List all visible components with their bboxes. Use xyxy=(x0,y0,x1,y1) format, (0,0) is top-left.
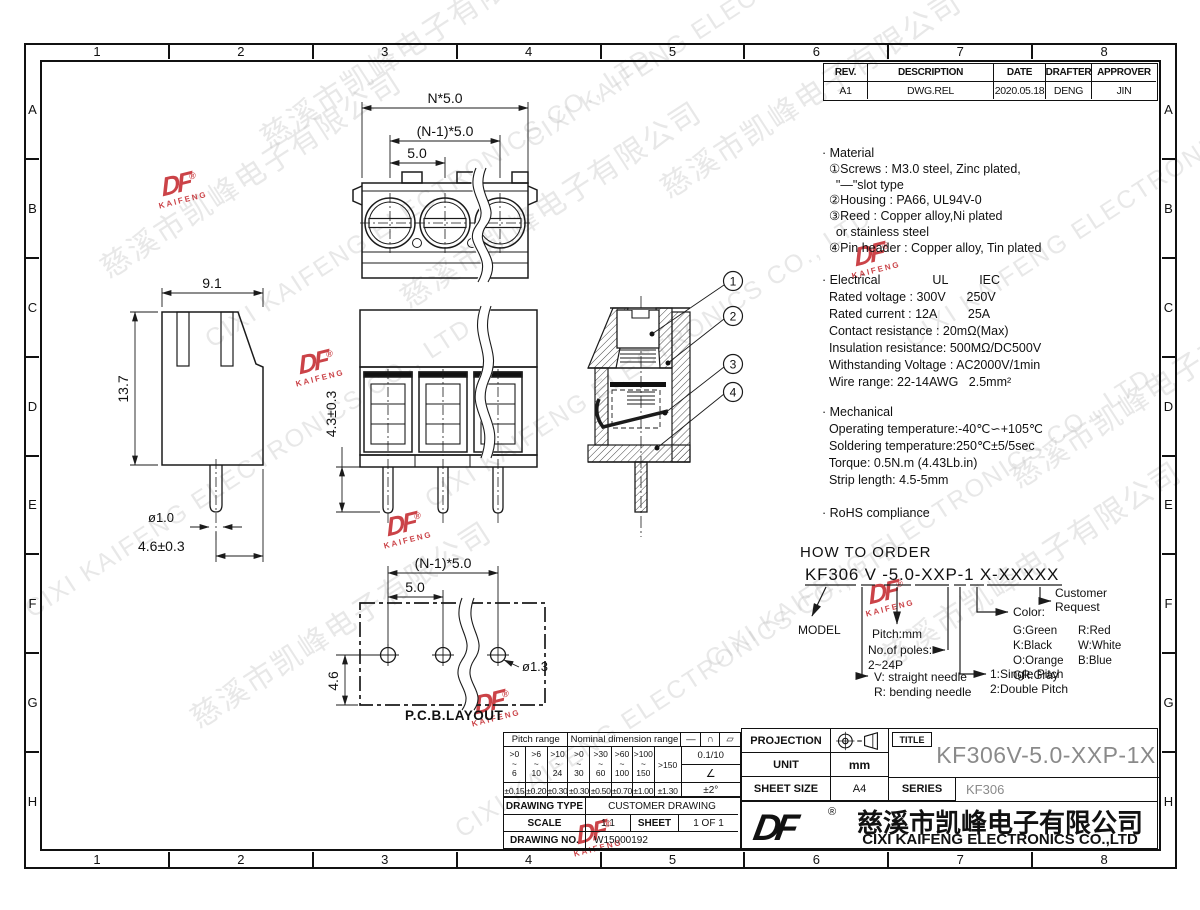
rev-header: APPROVER xyxy=(1092,64,1156,82)
arc-symbol-icon: ∩ xyxy=(701,733,720,747)
drawing-type-value: CUSTOMER DRAWING xyxy=(586,798,738,815)
tol-range: >6 ~ 10 xyxy=(526,747,548,783)
projection-symbol-icon xyxy=(831,729,889,753)
zone-letter: B xyxy=(1162,160,1175,259)
dim-top-overall: N*5.0 xyxy=(427,90,462,106)
dim-pcb-offset: 4.6 xyxy=(325,671,341,691)
angle-symbol-icon: ∠ xyxy=(682,765,740,783)
order-color-label: Color: xyxy=(1013,605,1045,619)
rev-value: DENG xyxy=(1046,82,1092,99)
drawing-title: KF306V-5.0-XXP-1X xyxy=(935,735,1157,775)
tol-range: >30 ~ 60 xyxy=(590,747,612,783)
drawing-info-table: DRAWING TYPE CUSTOMER DRAWING SCALE 1:1 … xyxy=(503,797,741,849)
zone-number: 1 xyxy=(26,44,170,59)
sheet-value: 1 OF 1 xyxy=(679,815,738,832)
dim-top-pitch: 5.0 xyxy=(407,145,427,161)
zone-number: 4 xyxy=(458,852,602,867)
dim-side-width: 9.1 xyxy=(202,275,222,291)
callout-4: 4 xyxy=(730,386,737,400)
dim-top-pitch-span: (N-1)*5.0 xyxy=(417,123,474,139)
sheet-label: SHEET xyxy=(631,815,679,832)
watermark-text: 慈溪市凯峰电子有限公司 xyxy=(180,508,499,737)
rev-header: DRAFTER xyxy=(1046,64,1092,82)
title-label: TITLE xyxy=(892,732,932,747)
material-notes: · Material ①Screws : M3.0 steel, Zinc pl… xyxy=(822,146,1041,257)
zone-letter: B xyxy=(26,160,39,259)
order-customer-2: Request xyxy=(1055,600,1100,614)
dim-side-height: 13.7 xyxy=(115,375,131,402)
order-color-gray: GR:Gray xyxy=(1013,670,1059,682)
tol-value: ±0.30 xyxy=(568,783,590,798)
zone-number: 2 xyxy=(170,852,314,867)
zone-letter: A xyxy=(26,61,39,160)
zone-letter: D xyxy=(26,358,39,457)
kaifeng-stamp: DF® KAIFENG xyxy=(465,682,522,728)
zone-letter: E xyxy=(26,457,39,556)
zone-number: 6 xyxy=(745,44,889,59)
scale-label: SCALE xyxy=(504,815,586,832)
zone-ruler-bottom: 1 2 3 4 5 6 7 8 xyxy=(26,852,1175,867)
zone-letter: H xyxy=(1162,753,1175,850)
zone-letter: D xyxy=(1162,358,1175,457)
tol-range: >150 xyxy=(655,747,682,783)
tol-value: ±0.20 xyxy=(526,783,548,798)
zone-number: 6 xyxy=(745,852,889,867)
kaifeng-stamp: DF® KAIFENG xyxy=(289,342,346,388)
zone-number: 2 xyxy=(170,44,314,59)
tol-value: ±0.50 xyxy=(590,783,612,798)
order-model-label: MODEL xyxy=(798,623,841,637)
rev-header: REV. xyxy=(824,64,868,82)
unit-value: mm xyxy=(831,753,889,777)
unit-label: UNIT xyxy=(742,753,831,777)
zone-number: 5 xyxy=(602,44,746,59)
order-needle-r: R: bending needle xyxy=(874,685,972,699)
tol-pitch-header: Pitch range xyxy=(504,733,568,747)
scale-value: 1:1 xyxy=(586,815,631,832)
order-needle-v: V: straight needle xyxy=(874,670,967,684)
zone-number: 7 xyxy=(889,44,1033,59)
tol-range: >60 ~ 100 xyxy=(612,747,633,783)
zone-letter: H xyxy=(26,753,39,850)
zone-number: 7 xyxy=(889,852,1033,867)
engineering-drawing-page: { "frame": { "columns": ["1","2","3","4"… xyxy=(0,0,1200,910)
profile-symbol-icon: ▱ xyxy=(720,733,740,747)
zone-letter: G xyxy=(26,654,39,753)
series-value: KF306 xyxy=(956,778,1159,801)
zone-letter: F xyxy=(26,555,39,654)
zone-letter: C xyxy=(26,259,39,358)
zone-number: 5 xyxy=(602,852,746,867)
title-block: PROJECTION UNIT mm SHEET SIZE A4 xyxy=(741,728,1158,849)
zone-number: 8 xyxy=(1033,852,1175,867)
order-customer-1: Customer xyxy=(1055,586,1107,600)
rev-header: DESCRIPTION xyxy=(868,64,994,82)
zone-number: 3 xyxy=(314,852,458,867)
order-double-pitch: 2:Double Pitch xyxy=(990,682,1068,696)
drawing-no-value: W15000192 xyxy=(586,832,738,849)
zone-number: 4 xyxy=(458,44,602,59)
order-color-black: K:Black xyxy=(1013,640,1052,652)
zone-letter: F xyxy=(1162,555,1175,654)
rev-value: 2020.05.18 xyxy=(994,82,1046,99)
mechanical-notes: · Mechanical Operating temperature:-40℃∽… xyxy=(822,404,1043,489)
tol-value: ±0.15 xyxy=(504,783,526,798)
sheet-size-value: A4 xyxy=(831,777,889,801)
zone-number: 1 xyxy=(26,852,170,867)
tol-range: >10 ~ 24 xyxy=(548,747,569,783)
tol-value: ±1.00 xyxy=(633,783,655,798)
order-color-red: R:Red xyxy=(1078,625,1111,637)
order-color-orange: O:Orange xyxy=(1013,655,1064,667)
drawing-type-label: DRAWING TYPE xyxy=(504,798,586,815)
flatness-symbol-icon: — xyxy=(681,733,701,747)
series-label: SERIES xyxy=(889,778,956,801)
rohs-note: · RoHS compliance xyxy=(822,506,930,522)
order-color-white: W:White xyxy=(1078,640,1121,652)
zone-letter: G xyxy=(1162,654,1175,753)
drawing-no-label: DRAWING NO. xyxy=(504,832,586,849)
tol-range: >0 ~ 6 xyxy=(504,747,526,783)
rev-value: A1 xyxy=(824,82,868,99)
tol-value: ±1.30 xyxy=(655,783,682,798)
tol-value: ±0.70 xyxy=(612,783,633,798)
front-view-dimensions xyxy=(336,447,380,512)
electrical-notes: · Electrical UL IEC Rated voltage : 300V… xyxy=(822,272,1041,391)
rev-value: JIN xyxy=(1092,82,1156,99)
company-name-en: CIXI KAIFENG ELECTRONICS CO.,LTD xyxy=(844,831,1156,848)
sheet-size-label: SHEET SIZE xyxy=(742,777,831,801)
registered-mark-icon: ® xyxy=(828,806,836,818)
kaifeng-stamp: DF® KAIFENG xyxy=(859,572,916,618)
tol-nominal-header: Nominal dimension range xyxy=(568,733,681,747)
projection-label: PROJECTION xyxy=(742,729,831,753)
tol-range: >100 ~ 150 xyxy=(633,747,655,783)
callout-3: 3 xyxy=(730,358,737,372)
order-color-blue: B:Blue xyxy=(1078,655,1112,667)
company-logo-icon: DF xyxy=(750,807,797,849)
tol-value: ±0.30 xyxy=(548,783,569,798)
zone-ruler-right: A B C D E F G H xyxy=(1162,61,1175,850)
tolerance-table: Pitch range Nominal dimension range — ∩ … xyxy=(503,732,741,797)
rev-value: DWG.REL xyxy=(868,82,994,99)
zone-number: 8 xyxy=(1033,44,1175,59)
zone-number: 3 xyxy=(314,44,458,59)
zone-ruler-top: 1 2 3 4 5 6 7 8 xyxy=(26,44,1175,59)
zone-ruler-left: A B C D E F G H xyxy=(26,61,39,850)
zone-letter: C xyxy=(1162,259,1175,358)
order-color-green: G:Green xyxy=(1013,625,1057,637)
dim-pcb-hole: ø1.3 xyxy=(522,659,548,674)
tol-range: >0 ~ 30 xyxy=(568,747,590,783)
order-single-pitch: 1:Single Pitch xyxy=(990,667,1063,681)
revision-table: REV. DESCRIPTION DATE DRAFTER APPROVER A… xyxy=(823,63,1158,101)
tol-angle-value: ±2° xyxy=(682,783,740,798)
zone-letter: A xyxy=(1162,61,1175,160)
rev-header: DATE xyxy=(994,64,1046,82)
zone-letter: E xyxy=(1162,457,1175,556)
company-block: DF ® 慈溪市凯峰电子有限公司 CIXI KAIFENG ELECTRONIC… xyxy=(742,801,1157,848)
tol-ratio: 0.1/10 xyxy=(682,747,740,765)
